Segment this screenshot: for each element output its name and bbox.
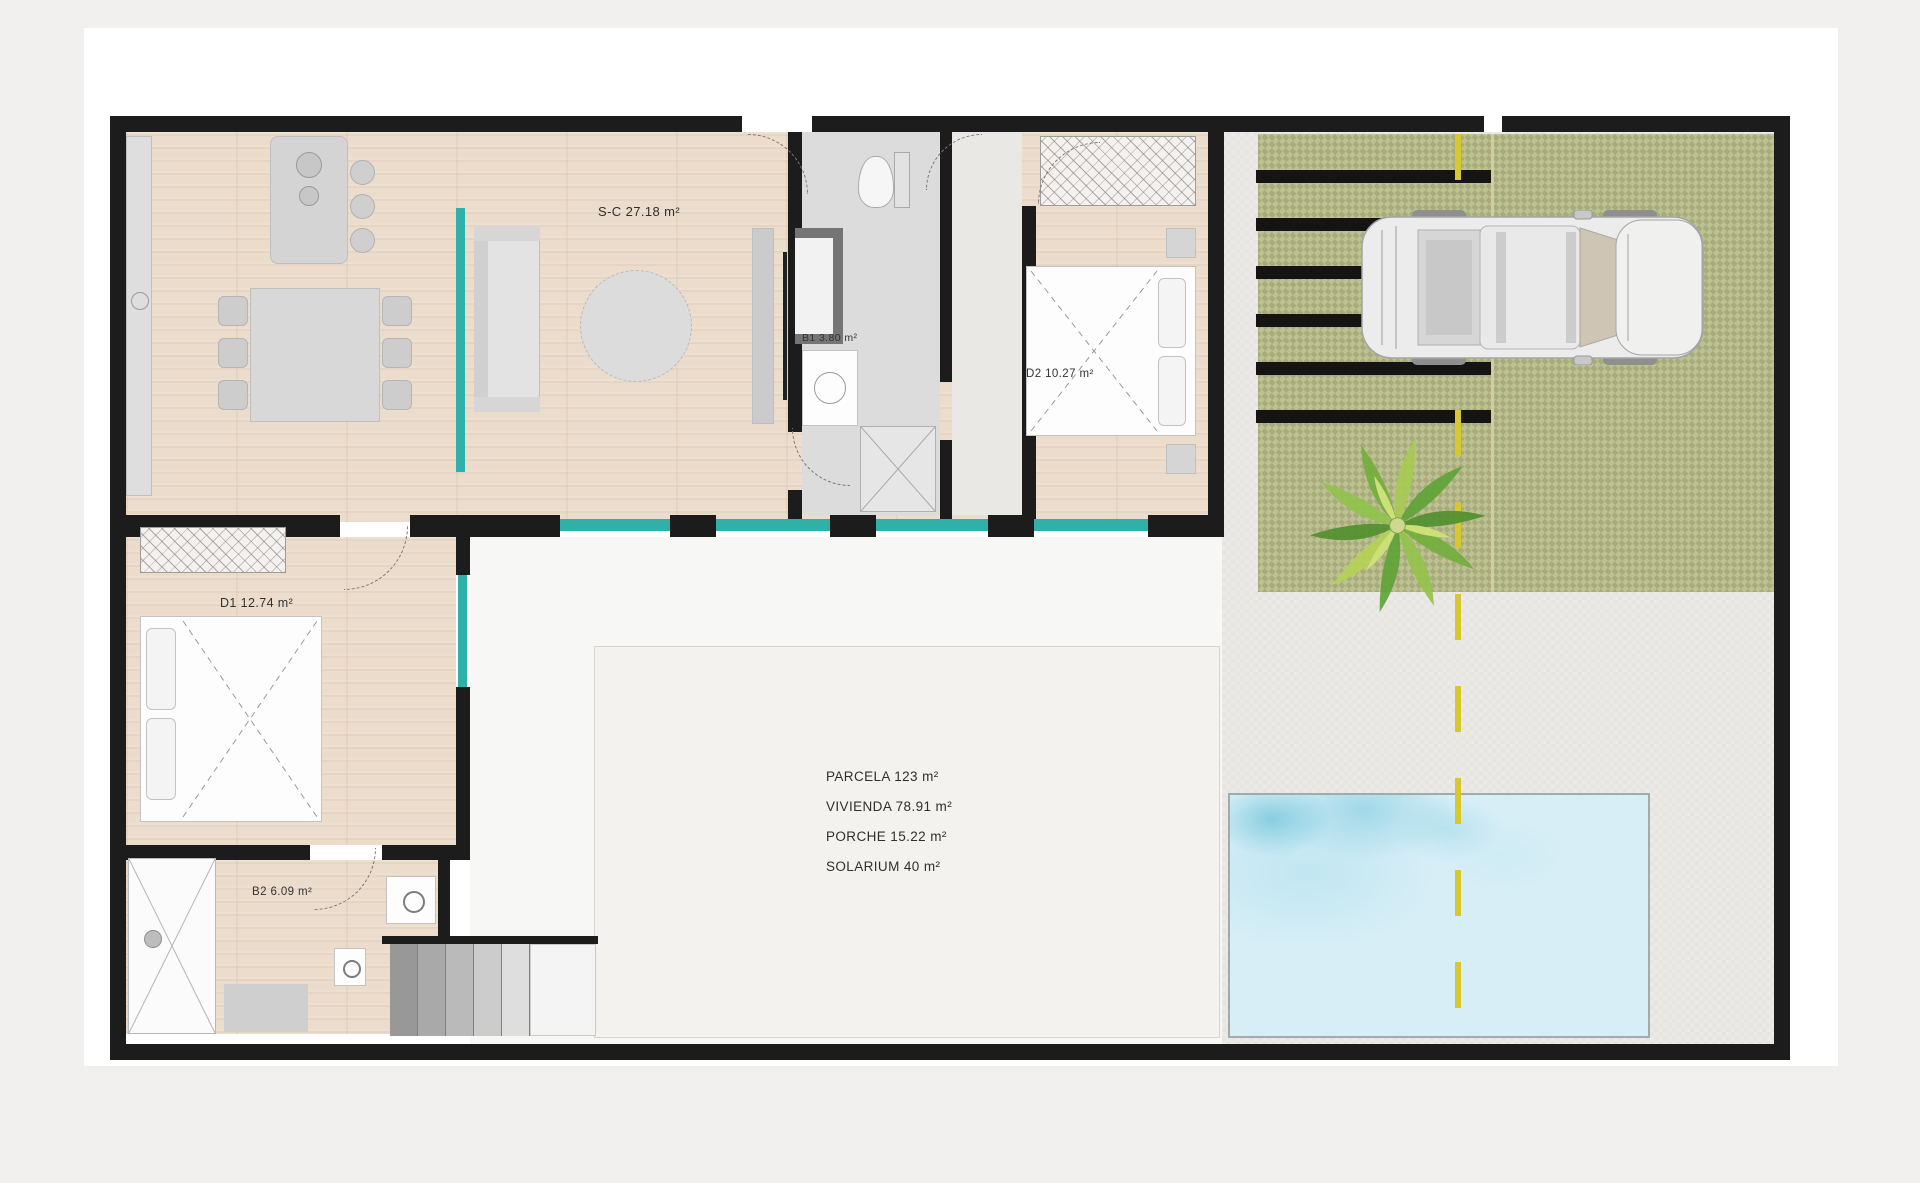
pillow bbox=[146, 718, 176, 800]
dining-chair bbox=[382, 296, 412, 326]
room-label-bedroom1: D1 12.74 m² bbox=[220, 596, 293, 610]
bar-stool bbox=[350, 160, 375, 185]
toilet-icon bbox=[858, 156, 894, 208]
pillow bbox=[1158, 356, 1186, 426]
room-label-living-kitchen: S-C 27.18 m² bbox=[598, 204, 680, 219]
stair-step bbox=[446, 944, 474, 1036]
outer-wall-top bbox=[1502, 116, 1790, 132]
south-wall-pier bbox=[830, 515, 876, 537]
kitchen-counter bbox=[126, 136, 152, 496]
glazing-window bbox=[458, 575, 467, 687]
summary-solarium: SOLARIUM 40 m² bbox=[826, 852, 952, 882]
bar-stool bbox=[350, 228, 375, 253]
sink-icon bbox=[131, 292, 149, 310]
wardrobe-bedroom1 bbox=[140, 527, 286, 573]
partition-bath2-stairs bbox=[438, 860, 450, 944]
room-label-bathroom1: B1 3.80 m² bbox=[802, 332, 857, 344]
floor-plan-canvas: S-C 27.18 m² B1 3.80 m² D2 10.27 m² D1 1… bbox=[0, 0, 1920, 1183]
stair-step bbox=[502, 944, 530, 1036]
outer-wall-top bbox=[812, 116, 1484, 132]
toilet-cistern bbox=[894, 152, 910, 208]
partition-living-bath bbox=[788, 490, 802, 522]
laundry-appliance bbox=[334, 948, 366, 986]
summary-porche: PORCHE 15.22 m² bbox=[826, 822, 952, 852]
staircase-wall bbox=[382, 936, 598, 944]
round-table bbox=[580, 270, 692, 382]
glazing-window bbox=[560, 519, 670, 531]
south-wall-pier bbox=[1148, 515, 1224, 537]
sofa-armrest bbox=[474, 397, 540, 412]
dining-table bbox=[250, 288, 380, 422]
outer-wall-bottom bbox=[110, 1044, 1790, 1060]
shower-head-icon bbox=[144, 930, 162, 948]
nightstand bbox=[1166, 228, 1196, 258]
stair-step bbox=[474, 944, 502, 1036]
bath-mat bbox=[224, 984, 308, 1032]
sofa-armrest bbox=[474, 226, 540, 241]
dining-chair bbox=[382, 380, 412, 410]
cooktop-icon bbox=[296, 152, 322, 178]
pillow bbox=[146, 628, 176, 710]
glazing-window bbox=[876, 519, 988, 531]
dining-chair bbox=[218, 338, 248, 368]
summary-vivienda: VIVIENDA 78.91 m² bbox=[826, 792, 952, 822]
partition-bath-hall bbox=[940, 440, 952, 522]
stair-landing bbox=[530, 944, 596, 1036]
cooktop-icon bbox=[299, 186, 319, 206]
building-right-wall bbox=[1208, 116, 1224, 537]
area-summary-block: PARCELA 123 m² VIVIENDA 78.91 m² PORCHE … bbox=[826, 762, 952, 882]
bathroom1-niche-shelf bbox=[795, 238, 833, 334]
stair-step bbox=[390, 944, 418, 1036]
bathroom1-shower-tray bbox=[860, 426, 936, 512]
room-label-bathroom2: B2 6.09 m² bbox=[252, 886, 312, 898]
glazing-window bbox=[1034, 519, 1148, 531]
swimming-pool bbox=[1228, 793, 1650, 1038]
glazing-window bbox=[456, 208, 465, 472]
car-top-view-icon bbox=[1360, 210, 1705, 365]
outer-wall-top bbox=[110, 116, 742, 132]
bedroom1-east-wall bbox=[456, 687, 470, 860]
tv-console bbox=[752, 228, 774, 424]
nightstand bbox=[1166, 444, 1196, 474]
sink-icon bbox=[814, 372, 846, 404]
stair-step bbox=[418, 944, 446, 1036]
sofa-backrest bbox=[474, 226, 488, 412]
dining-chair bbox=[218, 296, 248, 326]
outer-wall-right bbox=[1774, 116, 1790, 1060]
bedroom1-east-wall bbox=[456, 537, 470, 575]
outer-wall-left bbox=[110, 116, 126, 1060]
partition-bed1-bath2 bbox=[382, 845, 470, 860]
tv-screen bbox=[783, 252, 787, 400]
dining-chair bbox=[382, 338, 412, 368]
palm-tree-icon bbox=[1300, 428, 1495, 623]
bar-stool bbox=[350, 194, 375, 219]
dining-chair bbox=[218, 380, 248, 410]
south-wall-pier bbox=[988, 515, 1034, 537]
south-wall-pier bbox=[670, 515, 716, 537]
glazing-window bbox=[716, 519, 830, 531]
pillow bbox=[1158, 278, 1186, 348]
south-wall-pier bbox=[410, 515, 560, 537]
summary-parcela: PARCELA 123 m² bbox=[826, 762, 952, 792]
room-label-bedroom2: D2 10.27 m² bbox=[1026, 368, 1094, 380]
washing-machine-icon bbox=[386, 876, 436, 924]
bathroom2-shower bbox=[128, 858, 216, 1034]
